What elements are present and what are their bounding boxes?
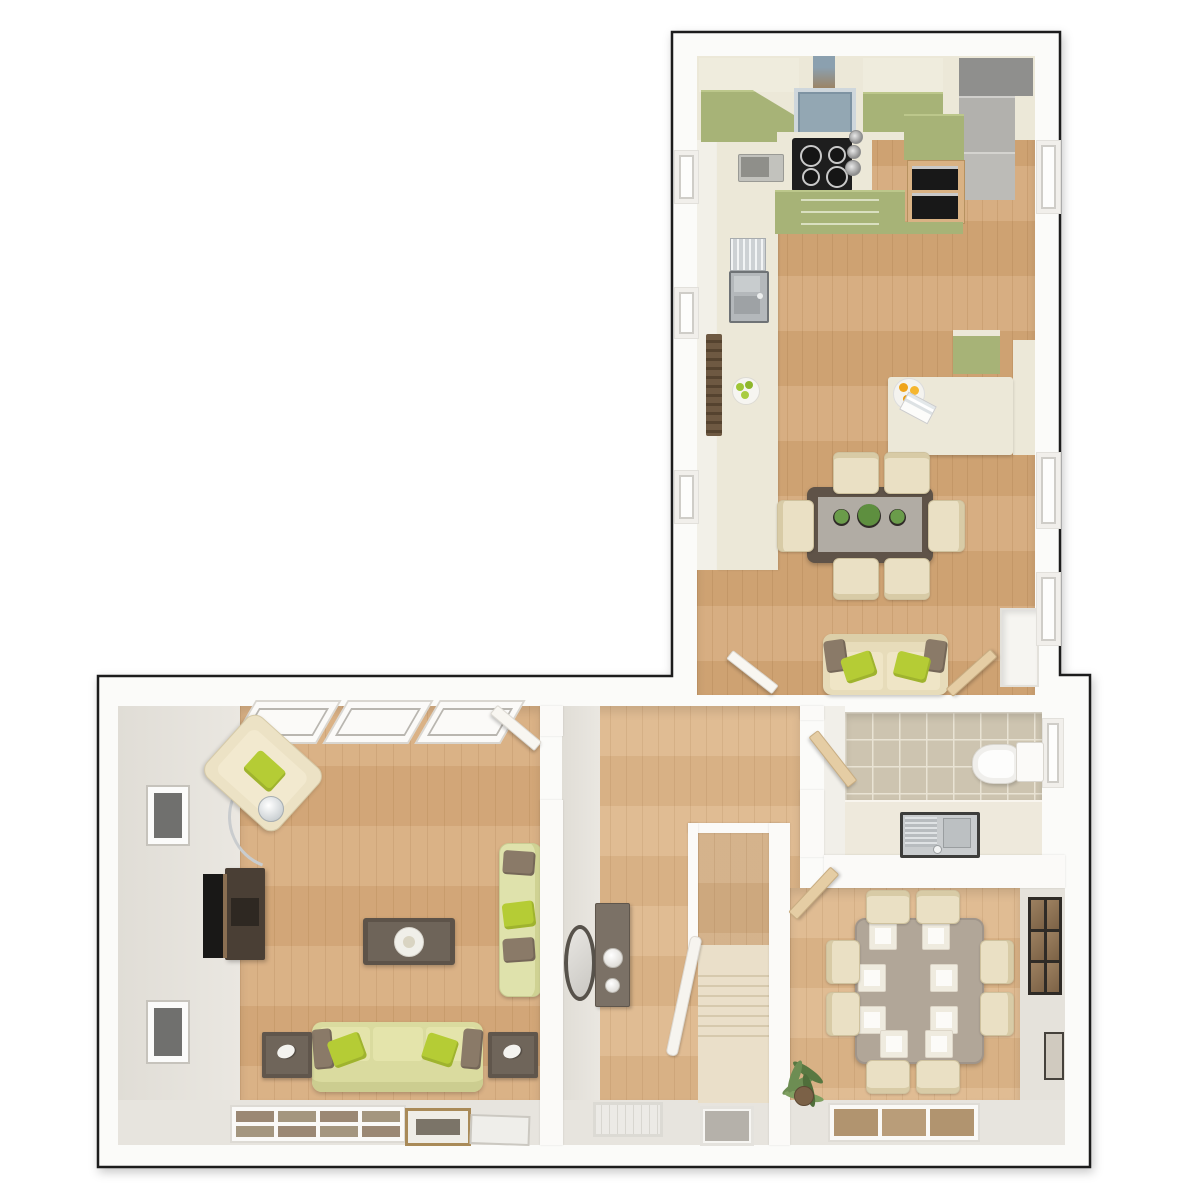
oval-mirror	[564, 925, 596, 1001]
dining-chair	[777, 500, 814, 552]
chaise-pillow-green	[502, 900, 537, 930]
dining-chair	[833, 452, 879, 494]
dining-chair	[980, 940, 1014, 984]
window-pane	[930, 1109, 974, 1136]
kitchen-sink	[729, 271, 769, 323]
console-table	[595, 903, 630, 1007]
stair-wall-top	[688, 823, 780, 833]
window-pane	[236, 1111, 274, 1122]
wall-picture	[146, 785, 190, 846]
wall-hall-wc-upper	[800, 706, 824, 720]
room-living	[118, 706, 540, 1145]
canister	[849, 130, 863, 144]
three-seat-sofa	[312, 1022, 483, 1092]
window-pane	[278, 1126, 316, 1137]
hob-burner	[828, 146, 846, 164]
window	[674, 287, 699, 339]
coffee-table	[363, 918, 455, 965]
breakfast-table	[807, 487, 933, 563]
decor-bowl	[603, 948, 623, 968]
window	[674, 150, 699, 204]
wall-hall-wc-lower	[800, 790, 824, 857]
drawer-handle	[801, 223, 879, 225]
potted-palm-plant	[778, 1058, 832, 1118]
canister	[845, 160, 861, 176]
front-door-mat	[593, 1102, 663, 1137]
sink-tap	[933, 845, 942, 854]
shelf-box	[1031, 932, 1044, 961]
sink-drainer	[734, 276, 760, 292]
microwave-door	[741, 157, 769, 177]
place-setting	[925, 1030, 953, 1058]
bar-base-unit-olive	[953, 330, 1000, 374]
wall-shelving-unit	[1028, 897, 1062, 995]
toilet	[972, 744, 1020, 784]
media-unit-shelf	[231, 898, 259, 926]
window-pane	[320, 1111, 358, 1122]
dining-chair	[826, 940, 860, 984]
sink-drainer-lines	[905, 817, 937, 847]
plant-pot	[794, 1086, 814, 1106]
sink-bowl	[734, 296, 760, 314]
picture-frame-on-sill	[405, 1108, 471, 1146]
juice-glass	[899, 383, 908, 392]
dish-drainer-rack	[730, 238, 766, 271]
base-drawers-olive	[775, 190, 905, 234]
place-setting	[858, 964, 886, 992]
window-pane	[362, 1111, 400, 1122]
oven-window-bottom	[912, 193, 958, 219]
wc-window	[1042, 718, 1064, 788]
shelf-box	[1047, 932, 1060, 961]
window-pane	[834, 1109, 878, 1136]
drawer-handle	[801, 199, 879, 201]
window-pane	[278, 1111, 316, 1122]
dining-chair	[980, 992, 1014, 1036]
shelf-box	[1031, 963, 1044, 992]
dining-window	[828, 1103, 980, 1142]
window	[1036, 452, 1061, 529]
dining-chair	[884, 558, 930, 600]
window	[1036, 572, 1061, 646]
drawer-handle	[801, 211, 879, 213]
breakfast-bar-wall-section	[1013, 340, 1035, 455]
small-frame-on-sill	[469, 1114, 530, 1146]
wall-wc-dining	[824, 855, 1065, 888]
understairs-floor	[698, 833, 769, 945]
corner-store-cupboard	[1000, 608, 1039, 687]
sofa-cushion-brown	[460, 1028, 483, 1070]
apple	[736, 383, 744, 391]
potted-plant-small	[889, 509, 906, 526]
potted-plant-small	[833, 509, 850, 526]
chaise-sofa	[499, 843, 542, 997]
side-table	[488, 1032, 538, 1078]
place-setting	[930, 964, 958, 992]
sink-tap	[757, 293, 763, 299]
window-pane	[882, 1109, 926, 1136]
sofa-seat	[373, 1027, 423, 1061]
hob-burner	[802, 168, 820, 186]
dining-chair	[916, 890, 960, 924]
television	[203, 874, 227, 958]
wc-sink	[900, 812, 980, 858]
hob	[792, 138, 852, 192]
dining-chair	[826, 992, 860, 1036]
window-pane	[236, 1126, 274, 1137]
wall-living-hall-upper	[540, 706, 563, 736]
side-table	[262, 1032, 312, 1078]
window-pane	[362, 1126, 400, 1137]
hob-burner	[800, 145, 822, 167]
upper-cabinet-right	[863, 58, 943, 92]
tv-media-unit	[225, 868, 265, 960]
wall-picture	[146, 1000, 190, 1064]
place-setting	[880, 1030, 908, 1058]
bay-window	[230, 1105, 406, 1143]
fridge-freezer-lower	[963, 152, 1015, 200]
tall-unit-olive	[904, 114, 964, 160]
stair-wall-left	[688, 823, 698, 953]
dining-chair	[866, 890, 910, 924]
dining-chair	[866, 1060, 910, 1094]
plate	[403, 936, 415, 948]
window	[1036, 140, 1061, 214]
room-kitchen	[697, 56, 1035, 695]
sink-basin	[943, 818, 971, 848]
dining-chair	[916, 1060, 960, 1094]
fruit-bowl	[732, 377, 760, 405]
double-oven	[907, 160, 965, 224]
oven-window-top	[912, 166, 958, 190]
small-wall-frame	[1044, 1032, 1064, 1080]
chaise-cushion-brown	[502, 937, 536, 963]
window	[674, 470, 699, 524]
canister	[847, 145, 861, 159]
kitchen-left-counter	[717, 140, 778, 570]
fridge-freezer	[959, 96, 1015, 152]
microwave	[738, 154, 784, 182]
upper-cabinet-left	[699, 58, 799, 92]
dining-chair	[884, 452, 930, 494]
apple	[741, 391, 749, 399]
fridge-top	[959, 58, 1033, 96]
wall-living-hall-lower	[540, 800, 563, 1145]
stair-treads	[698, 975, 769, 1043]
hall-window	[700, 1106, 754, 1146]
staircase	[698, 945, 769, 1103]
place-setting	[869, 922, 897, 950]
radiator	[706, 334, 722, 436]
chaise-cushion-brown	[502, 850, 536, 876]
floor-plan-canvas	[0, 0, 1200, 1200]
shelf-box	[1031, 900, 1044, 929]
shelf-box	[1047, 900, 1060, 929]
arc-lamp-globe	[258, 796, 284, 822]
two-seat-sofa	[823, 634, 948, 695]
base-unit-olive-right	[905, 222, 963, 234]
decor-bowl	[605, 978, 620, 993]
apple	[745, 381, 753, 389]
dining-chair	[833, 558, 879, 600]
potted-plant-large	[857, 504, 881, 528]
place-setting	[922, 922, 950, 950]
shelf-box	[1047, 963, 1060, 992]
toilet-cistern	[1016, 742, 1044, 782]
window-pane	[320, 1126, 358, 1137]
wc-left-wall-face	[824, 706, 845, 857]
dining-chair	[928, 500, 965, 552]
